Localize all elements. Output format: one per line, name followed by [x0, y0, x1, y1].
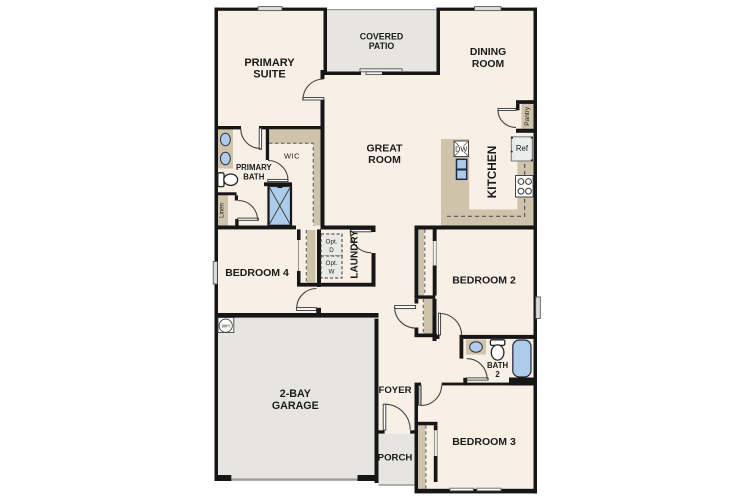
svg-text:2-BAY: 2-BAY: [280, 388, 311, 400]
svg-text:Ref: Ref: [516, 144, 529, 153]
svg-text:BATH: BATH: [487, 361, 508, 370]
svg-text:WH: WH: [222, 324, 231, 330]
svg-text:PORCH: PORCH: [378, 453, 413, 464]
svg-text:Opt.: Opt.: [326, 238, 338, 245]
svg-text:GARAGE: GARAGE: [272, 400, 319, 412]
svg-text:KITCHEN: KITCHEN: [485, 146, 499, 198]
svg-text:Opt.: Opt.: [326, 260, 338, 267]
svg-text:PRIMARY: PRIMARY: [244, 57, 295, 69]
svg-text:PRIMARY: PRIMARY: [236, 163, 272, 172]
svg-text:D: D: [329, 247, 334, 254]
svg-text:2: 2: [495, 370, 500, 379]
svg-text:BATH: BATH: [243, 173, 264, 182]
svg-text:SUITE: SUITE: [253, 69, 285, 81]
svg-text:BEDROOM 3: BEDROOM 3: [452, 436, 516, 448]
svg-text:Linen: Linen: [219, 203, 225, 218]
svg-text:LAUNDRY: LAUNDRY: [349, 230, 360, 279]
svg-text:W: W: [329, 269, 335, 276]
svg-text:PATIO: PATIO: [369, 41, 395, 51]
svg-text:Pantry: Pantry: [524, 106, 531, 126]
svg-text:ROOM: ROOM: [472, 59, 504, 70]
svg-text:DW: DW: [455, 144, 467, 153]
svg-text:FOYER: FOYER: [378, 385, 411, 396]
svg-text:WIC: WIC: [284, 151, 300, 160]
svg-text:BEDROOM 4: BEDROOM 4: [225, 267, 289, 279]
svg-text:DINING: DINING: [470, 47, 506, 58]
svg-text:GREAT: GREAT: [367, 142, 404, 154]
svg-text:ROOM: ROOM: [368, 154, 401, 166]
svg-text:BEDROOM 2: BEDROOM 2: [452, 275, 516, 287]
